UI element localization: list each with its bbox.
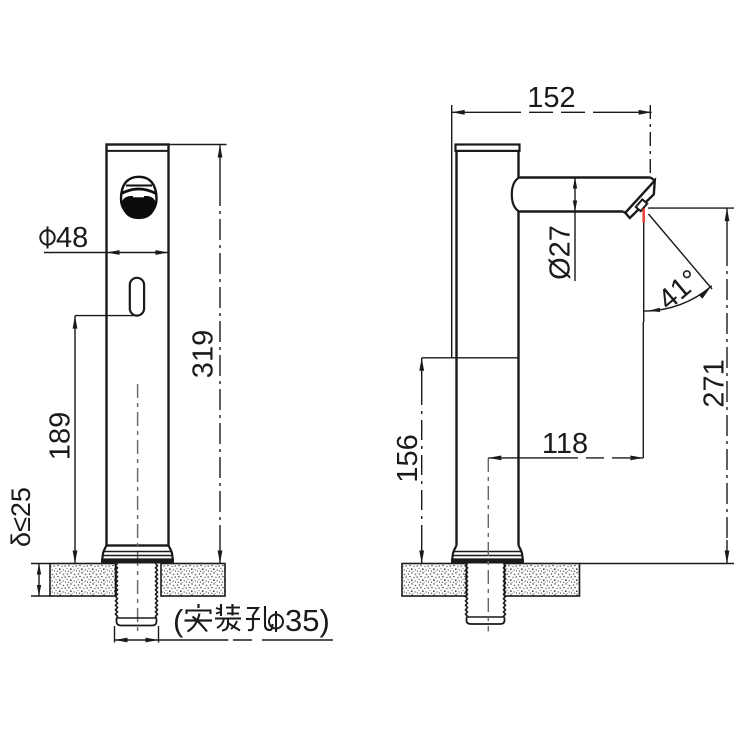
svg-text:Ø27: Ø27 <box>545 225 577 280</box>
svg-text:δ≤25: δ≤25 <box>6 487 36 547</box>
svg-text:48: 48 <box>56 222 88 254</box>
svg-text:156: 156 <box>392 434 424 482</box>
svg-text:189: 189 <box>45 412 77 460</box>
svg-text:271: 271 <box>699 359 731 407</box>
svg-text:319: 319 <box>188 330 220 378</box>
svg-text:(: ( <box>173 603 184 638</box>
svg-text:35): 35) <box>285 603 330 638</box>
svg-text:152: 152 <box>527 82 575 114</box>
svg-text:118: 118 <box>542 428 588 460</box>
